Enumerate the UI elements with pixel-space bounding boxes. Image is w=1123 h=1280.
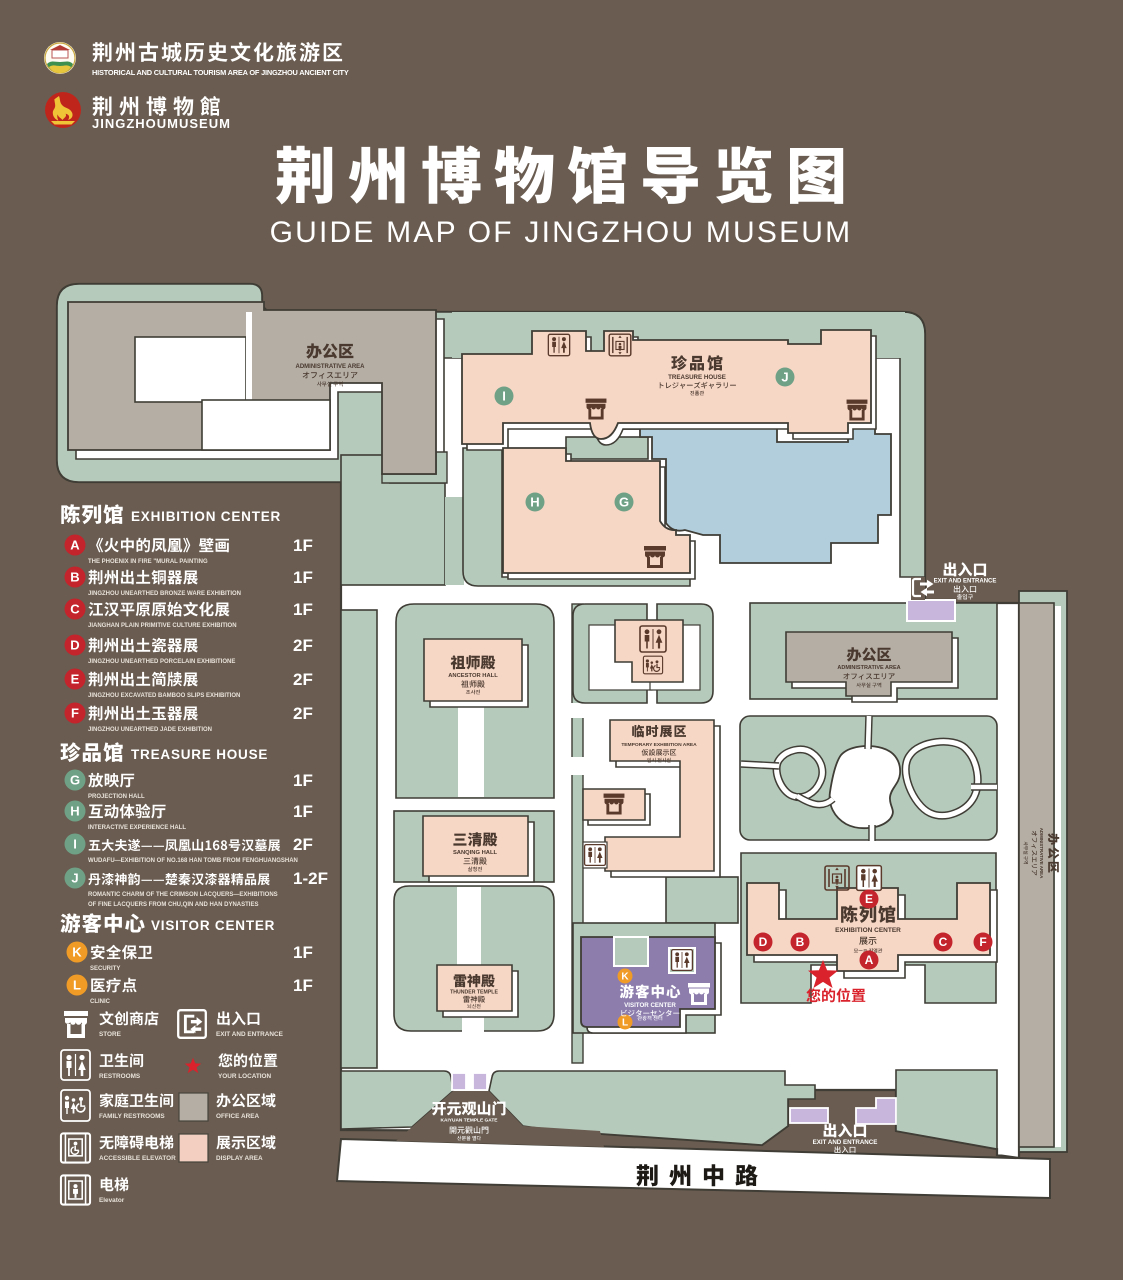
svg-text:YOUR LOCATION: YOUR LOCATION	[218, 1073, 272, 1080]
svg-text:EXHIBITION CENTER: EXHIBITION CENTER	[131, 509, 281, 524]
svg-text:1F: 1F	[293, 568, 313, 587]
svg-text:E: E	[865, 892, 873, 906]
svg-text:VISITOR CENTER: VISITOR CENTER	[151, 918, 275, 933]
svg-text:ROMANTIC CHARM OF THE CRIMSON: ROMANTIC CHARM OF THE CRIMSON LACQUERS—E…	[88, 892, 278, 898]
svg-text:Elevator: Elevator	[99, 1197, 125, 1204]
svg-text:HISTORICAL AND CULTURAL TOURIS: HISTORICAL AND CULTURAL TOURISM AREA OF …	[92, 68, 349, 77]
svg-text:1F: 1F	[293, 600, 313, 619]
svg-text:THUNDER TEMPLE: THUNDER TEMPLE	[450, 990, 498, 996]
svg-text:EXIT AND ENTRANCE: EXIT AND ENTRANCE	[216, 1031, 284, 1038]
svg-text:TREASURE HOUSE: TREASURE HOUSE	[668, 374, 726, 381]
svg-text:G: G	[619, 495, 629, 510]
svg-text:B: B	[70, 570, 79, 585]
svg-text:1F: 1F	[293, 943, 313, 962]
svg-text:I: I	[502, 389, 506, 404]
svg-text:C: C	[70, 602, 80, 617]
svg-text:JIANGHAN PLAIN PRIMITIVE CULTU: JIANGHAN PLAIN PRIMITIVE CULTURE EXHIBIT…	[88, 623, 237, 629]
svg-text:2F: 2F	[293, 636, 313, 655]
svg-text:K: K	[72, 945, 82, 960]
svg-text:H: H	[530, 495, 539, 510]
svg-text:JINGZHOUMUSEUM: JINGZHOUMUSEUM	[92, 116, 231, 131]
svg-text:JINGZHOU UNEARTHED PORCELAIN E: JINGZHOU UNEARTHED PORCELAIN EXHIBITIONE	[88, 659, 235, 665]
svg-text:2F: 2F	[293, 835, 313, 854]
svg-text:A: A	[865, 953, 874, 967]
svg-text:GUIDE MAP OF JINGZHOU MUSEUM: GUIDE MAP OF JINGZHOU MUSEUM	[270, 216, 853, 249]
svg-text:JINGZHOU UNEARTHED BRONZE WARE: JINGZHOU UNEARTHED BRONZE WARE EXHIBITIO…	[88, 591, 241, 597]
svg-text:FAMILY RESTROOMS: FAMILY RESTROOMS	[99, 1113, 165, 1120]
svg-text:INTERACTIVE EXPERIENCE HALL: INTERACTIVE EXPERIENCE HALL	[88, 825, 186, 831]
svg-text:D: D	[759, 935, 768, 949]
svg-text:JINGZHOU UNEARTHED JADE EXHIBI: JINGZHOU UNEARTHED JADE EXHIBITION	[88, 727, 212, 733]
svg-text:PROJECTION HALL: PROJECTION HALL	[88, 794, 145, 800]
svg-text:VISITOR CENTER: VISITOR CENTER	[624, 1002, 676, 1009]
svg-text:DISPLAY AREA: DISPLAY AREA	[216, 1155, 263, 1162]
svg-text:D: D	[70, 638, 79, 653]
svg-text:1-2F: 1-2F	[293, 869, 328, 888]
svg-text:A: A	[70, 538, 80, 553]
svg-text:H: H	[70, 804, 79, 819]
svg-text:EXIT AND ENTRANCE: EXIT AND ENTRANCE	[813, 1139, 878, 1146]
svg-text:ADMINISTRATIVE AREA: ADMINISTRATIVE AREA	[837, 665, 900, 671]
svg-text:2F: 2F	[293, 670, 313, 689]
svg-text:1F: 1F	[293, 536, 313, 555]
svg-text:EXIT AND ENTRANCE: EXIT AND ENTRANCE	[934, 579, 997, 585]
svg-text:F: F	[979, 935, 986, 949]
svg-text:SANQING HALL: SANQING HALL	[453, 850, 498, 856]
svg-text:ADMINISTRATIVE AREA: ADMINISTRATIVE AREA	[1039, 828, 1044, 879]
svg-text:1F: 1F	[293, 771, 313, 790]
svg-text:ACCESSIBLE ELEVATOR: ACCESSIBLE ELEVATOR	[99, 1155, 176, 1162]
svg-text:C: C	[939, 935, 948, 949]
svg-text:TREASURE HOUSE: TREASURE HOUSE	[131, 747, 268, 762]
svg-text:E: E	[71, 672, 80, 687]
svg-text:SECURITY: SECURITY	[90, 966, 120, 972]
svg-text:I: I	[73, 837, 77, 852]
svg-text:J: J	[781, 370, 788, 385]
svg-text:ANCESTOR HALL: ANCESTOR HALL	[448, 673, 498, 679]
svg-text:EXHIBITION CENTER: EXHIBITION CENTER	[835, 927, 901, 934]
svg-text:STORE: STORE	[99, 1031, 122, 1038]
svg-text:WUDAFU—EXHIBITION OF NO.168 HA: WUDAFU—EXHIBITION OF NO.168 HAN TOMB FRO…	[88, 858, 298, 864]
svg-text:ADMINISTRATIVE AREA: ADMINISTRATIVE AREA	[296, 364, 366, 370]
svg-text:CLINIC: CLINIC	[90, 999, 111, 1005]
svg-text:J: J	[71, 871, 78, 886]
svg-text:OF FINE LACQUERS FROM CHU,QIN: OF FINE LACQUERS FROM CHU,QIN AND HAN DY…	[88, 902, 258, 908]
svg-text:OFFICE AREA: OFFICE AREA	[216, 1113, 259, 1120]
svg-text:G: G	[70, 773, 80, 788]
svg-text:TEMPORARY EXHIBITION AREA: TEMPORARY EXHIBITION AREA	[621, 742, 697, 748]
svg-text:K: K	[621, 972, 629, 983]
svg-text:L: L	[622, 1018, 628, 1029]
svg-text:2F: 2F	[293, 704, 313, 723]
svg-text:1F: 1F	[293, 802, 313, 821]
svg-text:1F: 1F	[293, 976, 313, 995]
svg-text:THE PHOENIX IN FIRE "MURAL PAI: THE PHOENIX IN FIRE "MURAL PAINTING	[88, 559, 208, 565]
svg-text:L: L	[73, 978, 81, 993]
svg-text:KAIYUAN TEMPLE GATE: KAIYUAN TEMPLE GATE	[441, 1118, 499, 1124]
svg-text:RESTROOMS: RESTROOMS	[99, 1073, 141, 1080]
svg-text:JINGZHOU EXCAVATED BAMBOO SLIP: JINGZHOU EXCAVATED BAMBOO SLIPS EXHIBITI…	[88, 693, 240, 699]
svg-text:B: B	[796, 935, 805, 949]
svg-text:F: F	[71, 706, 79, 721]
